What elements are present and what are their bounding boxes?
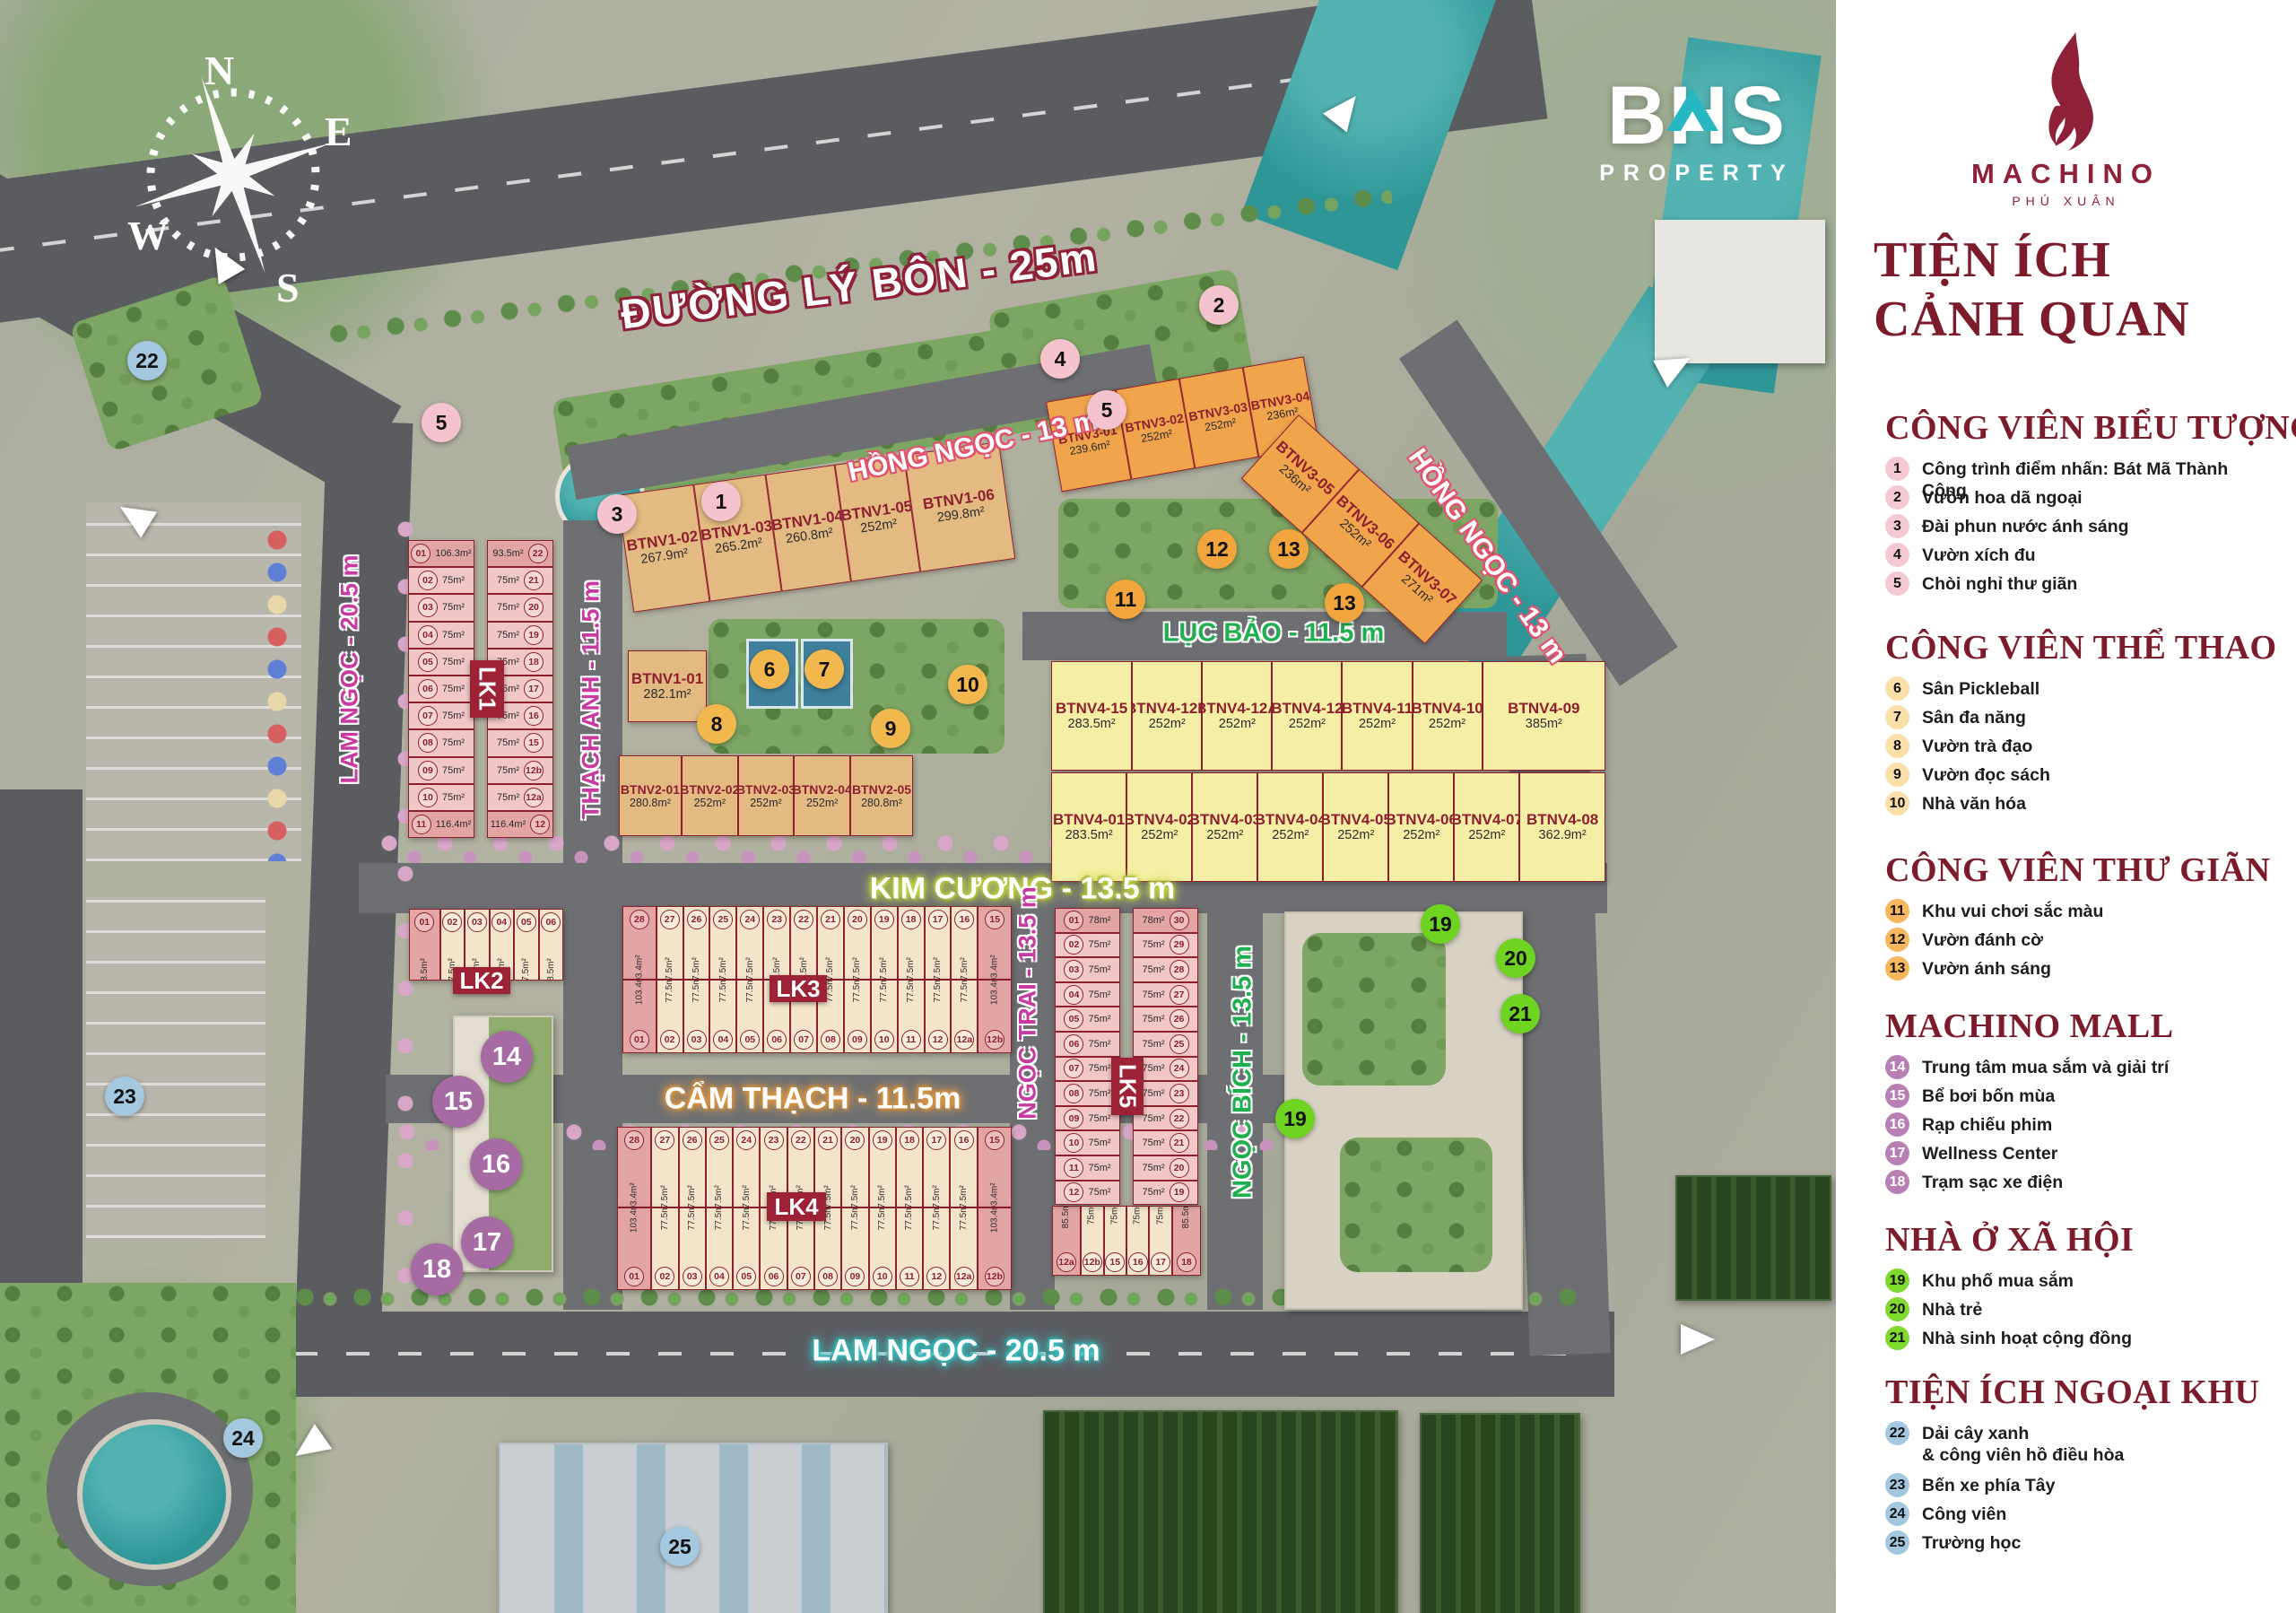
legend-item: 19Khu phố mua sắm	[1885, 1270, 2271, 1293]
lot-area: 280.8m²	[861, 797, 902, 809]
bhs-logo-sub: PROPERTY	[1598, 161, 1796, 187]
building-top-right	[1655, 220, 1825, 363]
lot-lk1-19: 75m²19	[487, 622, 553, 649]
block-lk5-left: 0178m²0275m²0375m²0475m²0575m²0675m²0775…	[1055, 908, 1120, 1205]
lot-number: 04	[418, 625, 438, 645]
lot-lk4-26: 2677.5m²	[679, 1127, 706, 1208]
lot-BTNV2-01: BTNV2-01280.8m²	[619, 755, 682, 836]
lot-BTNV4-07: BTNV4-07252m²	[1454, 772, 1519, 882]
lot-lk3-27: 2777.5m²	[657, 906, 683, 980]
street-label-luc-bao: LỤC BẢO - 11.5 m	[1163, 619, 1385, 649]
lot-number: 12	[1064, 1182, 1083, 1202]
lot-area: 75m²	[497, 575, 519, 586]
lot-number: 25	[709, 1130, 729, 1150]
lot-area: 75m²	[497, 792, 519, 803]
lot-area: 283.5m²	[1065, 828, 1113, 843]
market-umbrellas	[262, 529, 292, 861]
lot-area: 75m²	[1142, 1113, 1164, 1124]
lot-number: 16	[954, 910, 974, 929]
legend-item-number: 16	[1885, 1112, 1909, 1137]
lot-lk4-28: 28103.4m²	[617, 1127, 651, 1208]
legend-item-number: 22	[1885, 1421, 1909, 1445]
legend-item-number: 15	[1885, 1084, 1909, 1108]
lot-area: 116.4m²	[436, 819, 472, 830]
lot-area: 252m²	[1141, 828, 1178, 843]
lot-number: 12	[928, 1030, 948, 1050]
legend-item-label: Chòi nghỉ thư giãn	[1922, 573, 2077, 595]
lot-lk5-01: 0178m²	[1055, 908, 1120, 933]
legend-item-label: Vườn ánh sáng	[1922, 958, 2051, 980]
lot-area: 77.5m²	[933, 957, 944, 980]
lot-lk1-09: 0975m²	[408, 757, 474, 784]
lot-area: 77.5m²	[687, 1208, 698, 1230]
lot-lk3-18: 1877.5m²	[898, 906, 925, 980]
lot-id: BTNV2-03	[738, 782, 795, 797]
lot-number: 01	[630, 1030, 649, 1050]
legend-panel: MACHINO PHÚ XUÂN TIỆN ÍCH CẢNH QUAN CÔNG…	[1836, 0, 2296, 1613]
lot-area: 77.5m²	[959, 1185, 970, 1208]
lot-number: 08	[818, 1267, 838, 1286]
lot-lk4-15: 15103.4m²	[978, 1127, 1012, 1208]
lot-lk3-02: 77.5m²02	[657, 980, 683, 1053]
map-marker-5: 5	[422, 403, 461, 442]
lot-number: 06	[418, 679, 438, 699]
map-marker-3: 3	[597, 494, 637, 534]
direction-arrow	[1681, 1324, 1715, 1355]
legend-item: 6Sân Pickleball	[1885, 678, 2271, 701]
lot-area: 103.4m²	[989, 1182, 1000, 1208]
lot-area: 77.5m²	[932, 1185, 943, 1208]
lot-area: 252m²	[1149, 717, 1186, 732]
lot-number: 04	[709, 1267, 729, 1286]
legend-item-label: Vườn đánh cờ	[1922, 929, 2043, 951]
lot-lk4-02: 77.5m²02	[651, 1208, 678, 1290]
map-marker-25: 25	[660, 1527, 700, 1566]
map-marker-17: 17	[461, 1216, 513, 1269]
lot-area: 77.5m²	[877, 1185, 888, 1208]
lot-area: 252m²	[1468, 828, 1505, 843]
legend-item-label: Vườn xích đu	[1922, 545, 2036, 566]
panel-title-line1: TIỆN ÍCH	[1874, 231, 2190, 291]
lot-number: 27	[660, 910, 680, 929]
lot-number: 21	[1170, 1133, 1189, 1153]
lot-lk1-11: 11116.4m²	[408, 811, 474, 838]
lot-number: 04	[1064, 985, 1083, 1005]
lot-lk4-12: 77.5m²12	[923, 1208, 950, 1290]
lot-number: 05	[517, 912, 536, 932]
legend-item-label: Khu phố mua sắm	[1922, 1270, 2074, 1292]
block-lk1-left: 01106.3m²0275m²0375m²0475m²0575m²0675m²0…	[408, 540, 474, 838]
lot-number: 04	[713, 1030, 733, 1050]
block-btnv1s: BTNV1-01282.1m²	[628, 650, 707, 722]
lot-area: 252m²	[1272, 828, 1309, 843]
lot-number: 23	[1170, 1084, 1189, 1103]
block-btnv4b: BTNV4-01283.5m²BTNV4-02252m²BTNV4-03252m…	[1051, 772, 1605, 882]
lot-number: 06	[541, 912, 561, 932]
lot-area: 252m²	[750, 797, 781, 809]
lot-number: 03	[418, 597, 438, 617]
legend-item: 11Khu vui chơi sắc màu	[1885, 901, 2271, 923]
lot-area: 77.5m²	[879, 957, 890, 980]
lot-area: 103.4m²	[989, 1208, 1000, 1233]
lot-lk3-28: 28103.4m²	[622, 906, 657, 980]
lot-number: 17	[928, 910, 948, 929]
lot-area: 77.5m²	[959, 1208, 970, 1230]
legend-item-number: 2	[1885, 485, 1909, 510]
legend-item-number: 11	[1885, 899, 1909, 923]
lot-number: 09	[845, 1267, 865, 1286]
lot-id: BTNV4-03	[1192, 811, 1257, 829]
lot-lk3-10: 77.5m²10	[871, 980, 898, 1053]
lot-number: 12a	[1057, 1252, 1076, 1272]
lot-id: BTNV4-06	[1388, 811, 1454, 829]
lot-number: 26	[1170, 1009, 1189, 1029]
map-marker-5: 5	[1087, 390, 1126, 430]
legend-item-label: Nhà văn hóa	[1922, 793, 2026, 815]
legend-item-label: Sân đa năng	[1922, 707, 2026, 728]
lot-lk4-10: 77.5m²10	[869, 1208, 896, 1290]
lot-area: 103.4m²	[629, 1182, 639, 1208]
lot-BTNV4-09: BTNV4-09385m²	[1483, 661, 1605, 771]
lot-number: 28	[630, 910, 649, 929]
lot-number: 21	[821, 910, 840, 929]
lot-area: 75m²	[442, 737, 465, 748]
lot-id: BTNV4-02	[1126, 811, 1192, 829]
lot-area: 77.5m²	[852, 957, 863, 980]
green-roof-building-a	[1043, 1410, 1398, 1613]
lot-lk3-09: 77.5m²09	[844, 980, 871, 1053]
lot-number: 28	[1170, 960, 1189, 980]
legend-item: 16Rạp chiếu phim	[1885, 1114, 2271, 1137]
lot-area: 252m²	[1289, 717, 1326, 732]
lot-area: 75m²	[1109, 1206, 1120, 1225]
noxh-complex	[1284, 911, 1523, 1310]
lot-number: 12b	[524, 761, 544, 780]
lot-number: 06	[767, 1030, 787, 1050]
map-marker-21: 21	[1500, 994, 1540, 1033]
map-marker-19: 19	[1421, 904, 1460, 944]
lot-area: 75m²	[1088, 964, 1110, 975]
lot-number: 16	[954, 1130, 974, 1150]
lot-area: 75m²	[442, 684, 465, 694]
lot-area: 77.5m²	[718, 957, 729, 980]
block-btnv2: BTNV2-01280.8m²BTNV2-02252m²BTNV2-03252m…	[619, 755, 913, 836]
legend-item: 5Chòi nghỉ thư giãn	[1885, 573, 2271, 596]
lot-lk1-01: 01106.3m²	[408, 540, 474, 567]
lot-area: 77.5m²	[904, 1185, 915, 1208]
lot-number: 26	[687, 910, 707, 929]
lot-area: 77.5m²	[665, 957, 675, 980]
lot-number: 20	[524, 597, 544, 617]
map-marker-23: 23	[105, 1077, 144, 1116]
lot-area: 77.5m²	[745, 957, 756, 980]
lake-southwest	[77, 1419, 231, 1570]
lot-area: 77.5m²	[850, 1208, 861, 1230]
lot-lk4-17: 1777.5m²	[923, 1127, 950, 1208]
lot-number: 09	[418, 761, 438, 780]
legend-item-label: Trạm sạc xe điện	[1922, 1172, 2063, 1193]
lot-number: 06	[764, 1267, 784, 1286]
lot-BTNV4-01: BTNV4-01283.5m²	[1051, 772, 1126, 882]
lot-number: 22	[791, 1130, 811, 1150]
lot-BTNV4-06: BTNV4-06252m²	[1388, 772, 1454, 882]
lot-lk1-22: 93.5m²22	[487, 540, 553, 567]
lot-number: 24	[740, 910, 760, 929]
lot-number: 19	[524, 625, 544, 645]
lot-lk5-28: 75m²28	[1133, 957, 1198, 982]
brand-subtitle: PHÚ XUÂN	[1836, 194, 2296, 208]
lot-BTNV4-12A: BTNV4-12A252m²	[1202, 661, 1272, 771]
lot-lk4-09: 77.5m²09	[841, 1208, 868, 1290]
legend-item: 20Nhà trẻ	[1885, 1299, 2271, 1321]
lot-lk5-18: 85.5m²18	[1172, 1206, 1201, 1276]
lot-number: 22	[528, 544, 548, 563]
lot-BTNV2-05: BTNV2-05280.8m²	[850, 755, 913, 836]
lot-number: 09	[848, 1030, 867, 1050]
map-marker-6: 6	[750, 650, 789, 689]
lot-lk5-29: 75m²29	[1133, 933, 1198, 958]
legend-item-number: 17	[1885, 1141, 1909, 1165]
lot-number: 07	[1064, 1059, 1083, 1078]
lot-id: BTNV4-15	[1056, 700, 1127, 718]
lot-number: 03	[467, 912, 487, 932]
lot-number: 07	[794, 1030, 813, 1050]
legend-item-number: 14	[1885, 1055, 1909, 1079]
lot-number: 19	[874, 910, 894, 929]
flame-icon	[2026, 32, 2107, 151]
lot-number: 19	[873, 1130, 892, 1150]
legend-item-number: 18	[1885, 1170, 1909, 1194]
lot-lk3-12b: 103.4m²12b	[978, 980, 1012, 1053]
lot-area: 75m²	[442, 602, 465, 613]
legend-item-number: 4	[1885, 543, 1909, 567]
lot-lk4-12a: 77.5m²12a	[950, 1208, 977, 1290]
legend-section-title: NHÀ Ở XÃ HỘI	[1885, 1220, 2134, 1260]
lot-lk5-02: 0275m²	[1055, 933, 1120, 958]
lot-number: 18	[524, 652, 544, 672]
lot-area: 75m²	[1142, 1187, 1164, 1198]
lot-lk4-03: 77.5m²03	[679, 1208, 706, 1290]
lot-lk3-03: 77.5m²03	[683, 980, 710, 1053]
lot-number: 03	[687, 1030, 707, 1050]
lot-lk2-06: 0688.5m²	[539, 909, 563, 981]
lot-number: 18	[900, 1130, 919, 1150]
lot-area: 77.5m²	[904, 1208, 915, 1230]
machino-master-plan-poster: { "bhs": {"name": "BHS", "sub": "PROPERT…	[0, 0, 2296, 1613]
lot-number: 21	[818, 1130, 838, 1150]
lot-lk1-21: 75m²21	[487, 567, 553, 594]
lot-number: 28	[624, 1130, 644, 1150]
lot-id: BTNV4-04	[1257, 811, 1323, 829]
lot-number: 01	[624, 1267, 644, 1286]
lot-area: 77.5m²	[714, 1208, 725, 1230]
street-label-lam-ngoc-s: LAM NGỌC - 20.5 m	[812, 1334, 1100, 1369]
map-marker-20: 20	[1496, 938, 1535, 978]
lot-id: BTNV4-12A	[1202, 700, 1272, 718]
lot-lk5-19: 75m²19	[1133, 1181, 1198, 1206]
lot-area: 77.5m²	[933, 980, 944, 1002]
lot-id: BTNV4-08	[1526, 811, 1598, 829]
lot-lk3-24: 2477.5m²	[736, 906, 763, 980]
lot-area: 75m²	[1088, 1063, 1110, 1074]
lot-number: 10	[874, 1030, 894, 1050]
lot-lk3-16: 1677.5m²	[951, 906, 978, 980]
lot-number: 12b	[985, 1030, 1004, 1050]
legend-item: 14Trung tâm mua sắm và giải trí	[1885, 1057, 2271, 1079]
lot-lk5-21: 75m²21	[1133, 1130, 1198, 1155]
lot-lk1-12: 116.4m²12	[487, 811, 553, 838]
legend-item-label: Trung tâm mua sắm và giải trí	[1922, 1057, 2169, 1078]
legend-item: 21Nhà sinh hoạt cộng đồng	[1885, 1328, 2271, 1350]
legend-item-number: 13	[1885, 956, 1909, 981]
lot-area: 75m²	[1088, 1113, 1110, 1124]
lot-area: 252m²	[1359, 717, 1396, 732]
lot-area: 77.5m²	[718, 980, 729, 1002]
lot-id: BTNV2-02	[682, 782, 738, 797]
map-marker-7: 7	[804, 650, 844, 689]
lot-area: 75m²	[1088, 1014, 1110, 1024]
lot-area: 78m²	[1088, 915, 1110, 926]
lot-id: BTNV4-01	[1053, 811, 1125, 829]
lot-id: BTNV4-12	[1272, 700, 1342, 718]
lot-BTNV4-12: BTNV4-12252m²	[1272, 661, 1342, 771]
lot-number: 26	[683, 1130, 702, 1150]
legend-item: 7Sân đa năng	[1885, 707, 2271, 729]
lot-lk3-19: 1977.5m²	[871, 906, 898, 980]
lot-area: 75m²	[442, 575, 465, 586]
lot-area: 75m²	[442, 711, 465, 721]
lot-area: 103.4m²	[989, 955, 1000, 980]
legend-item-number: 5	[1885, 571, 1909, 596]
legend-item-label: Rạp chiếu phim	[1922, 1114, 2052, 1136]
lot-number: 12a	[954, 1030, 974, 1050]
legend-item-label: Đài phun nước ánh sáng	[1922, 516, 2129, 537]
legend-item-label: Vườn hoa dã ngoại	[1922, 487, 2083, 509]
lot-lk3-21: 2177.5m²	[817, 906, 844, 980]
lot-lk3-22: 2277.5m²	[790, 906, 817, 980]
lot-lk5-10: 1075m²	[1055, 1130, 1120, 1155]
lot-area: 77.5m²	[660, 1208, 671, 1230]
legend-item: 12Vườn đánh cờ	[1885, 929, 2271, 952]
lot-number: 09	[1064, 1109, 1083, 1129]
street-label-thach-anh: THẠCH ANH - 11.5 m	[578, 580, 605, 819]
lot-area: 75m²	[1142, 990, 1164, 1000]
lot-number: 27	[655, 1130, 674, 1150]
lot-lk5-12: 1275m²	[1055, 1181, 1120, 1206]
lot-area: 75m²	[1088, 1088, 1110, 1099]
lot-number: 19	[1170, 1182, 1189, 1202]
lot-lk1-12b: 75m²12b	[487, 757, 553, 784]
block-label-lk4: LK4	[767, 1192, 826, 1221]
street-label-ngoc-bich: NGỌC BÍCH - 13.5 m	[1229, 946, 1258, 1199]
lot-id: BTNV2-04	[794, 782, 850, 797]
block-lk3t: 28103.4m²2777.5m²2677.5m²2577.5m²2477.5m…	[622, 906, 1012, 980]
lot-BTNV4-15: BTNV4-15283.5m²	[1051, 661, 1132, 771]
legend-item-label: Vườn đọc sách	[1922, 764, 2050, 786]
lot-area: 282.1m²	[643, 687, 691, 702]
block-btnv4t: BTNV4-15283.5m²BTNV4-12B252m²BTNV4-12A25…	[1051, 661, 1605, 771]
lot-area: 362.9m²	[1539, 828, 1587, 843]
lot-lk5-26: 75m²26	[1133, 1007, 1198, 1032]
lot-number: 20	[1170, 1158, 1189, 1178]
lot-BTNV2-02: BTNV2-02252m²	[682, 755, 738, 836]
block-label-lk1: LK1	[470, 660, 504, 718]
lot-area: 75m²	[1087, 1206, 1098, 1225]
lot-area: 75m²	[1142, 1063, 1164, 1074]
lot-lk4-18: 1877.5m²	[896, 1127, 923, 1208]
lot-area: 75m²	[1088, 1138, 1110, 1148]
lot-area: 75m²	[442, 657, 465, 667]
legend-item-number: 8	[1885, 734, 1909, 758]
lot-number: 10	[873, 1267, 892, 1286]
lot-area: 85.5m²	[1061, 1206, 1072, 1228]
school-building	[499, 1443, 888, 1613]
lot-BTNV4-05: BTNV4-05252m²	[1323, 772, 1388, 882]
lot-area: 75m²	[1088, 939, 1110, 950]
map-marker-9: 9	[871, 709, 910, 748]
lot-area: 75m²	[1088, 990, 1110, 1000]
lot-id: BTNV4-09	[1508, 700, 1579, 718]
legend-item-number: 10	[1885, 791, 1909, 815]
lot-lk2-05: 0577.5m²	[514, 909, 538, 981]
legend-section-title: CÔNG VIÊN THƯ GIÃN	[1885, 850, 2271, 890]
map-marker-13: 13	[1325, 583, 1364, 623]
lot-number: 11	[901, 1030, 921, 1050]
lot-lk5-16: 75m²16	[1126, 1206, 1149, 1276]
lot-number: 12b	[1083, 1252, 1102, 1272]
lot-area: 77.5m²	[852, 980, 863, 1002]
legend-item-number: 23	[1885, 1473, 1909, 1497]
lot-number: 01	[414, 912, 434, 932]
lot-lk3-11: 77.5m²11	[898, 980, 925, 1053]
lot-lk5-12a: 85.5m²12a	[1052, 1206, 1081, 1276]
lot-number: 21	[524, 571, 544, 590]
compass-w: W	[127, 213, 169, 258]
lot-BTNV4-03: BTNV4-03252m²	[1192, 772, 1257, 882]
map-marker-19: 19	[1275, 1099, 1315, 1138]
lot-area: 77.5m²	[906, 980, 917, 1002]
machino-logo: MACHINO PHÚ XUÂN	[1836, 32, 2296, 208]
lot-area: 75m²	[1142, 1014, 1164, 1024]
legend-item: 18Trạm sạc xe điện	[1885, 1172, 2271, 1194]
lot-number: 11	[900, 1267, 919, 1286]
lot-area: 77.5m²	[932, 1208, 943, 1230]
lot-BTNV1-01: BTNV1-01282.1m²	[628, 650, 707, 722]
legend-item: 17Wellness Center	[1885, 1143, 2271, 1165]
lot-lk4-11: 77.5m²11	[896, 1208, 923, 1290]
lot-area: 77.5m²	[906, 957, 917, 980]
lot-area: 77.5m²	[879, 980, 890, 1002]
lot-number: 16	[1128, 1252, 1148, 1272]
lot-id: BTNV4-07	[1454, 811, 1519, 829]
lot-number: 23	[764, 1130, 784, 1150]
lot-lk5-20: 75m²20	[1133, 1155, 1198, 1181]
legend-item-label: Sân Pickleball	[1922, 678, 2039, 700]
lot-lk1-03: 0375m²	[408, 594, 474, 621]
legend-item: 22Dải cây xanh & công viên hồ điều hòa	[1885, 1423, 2271, 1467]
street-label-lam-ngoc-w: LAM NGỌC - 20.5 m	[336, 554, 364, 783]
legend-section-title: CÔNG VIÊN BIỂU TƯỢNG	[1885, 408, 2296, 448]
lot-area: 252m²	[1429, 717, 1465, 732]
lot-lk1-05: 0575m²	[408, 649, 474, 676]
legend-item: 10Nhà văn hóa	[1885, 793, 2271, 815]
lot-number: 24	[736, 1130, 756, 1150]
lot-lk1-06: 0675m²	[408, 676, 474, 702]
lot-number: 02	[660, 1030, 680, 1050]
lot-area: 77.5m²	[960, 957, 970, 980]
legend-item: 13Vườn ánh sáng	[1885, 958, 2271, 981]
lot-lk1-15: 75m²15	[487, 729, 553, 756]
